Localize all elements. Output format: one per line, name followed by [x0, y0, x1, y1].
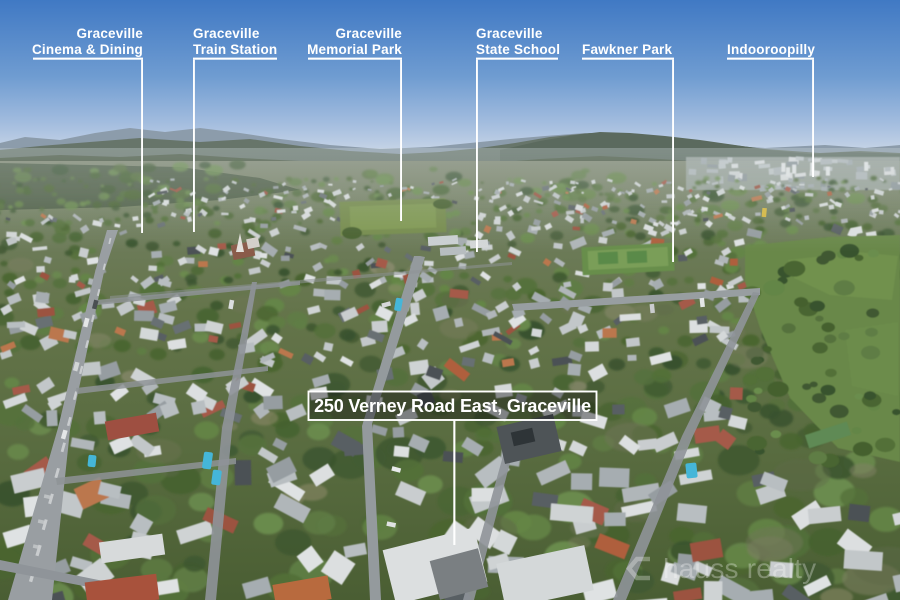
svg-text:State School: State School [476, 42, 560, 57]
svg-text:Train Station: Train Station [193, 42, 277, 57]
svg-text:Fawkner Park: Fawkner Park [582, 42, 672, 57]
svg-text:Graceville: Graceville [76, 26, 143, 41]
svg-text:Graceville: Graceville [193, 26, 260, 41]
svg-text:hauss realty: hauss realty [663, 553, 816, 584]
svg-text:Graceville: Graceville [335, 26, 402, 41]
svg-text:250 Verney Road East, Gracevil: 250 Verney Road East, Graceville [314, 396, 591, 416]
svg-text:Graceville: Graceville [476, 26, 543, 41]
svg-text:Indooroopilly: Indooroopilly [727, 42, 815, 57]
svg-text:Cinema & Dining: Cinema & Dining [32, 42, 143, 57]
svg-text:Memorial Park: Memorial Park [307, 42, 402, 57]
